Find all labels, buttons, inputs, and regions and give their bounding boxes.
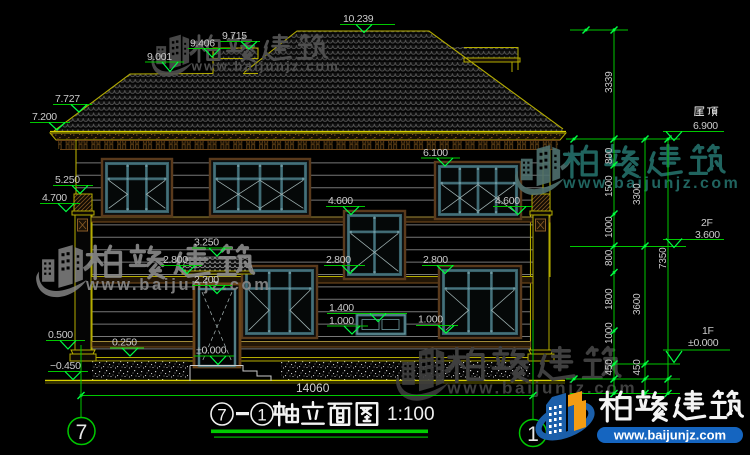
svg-text:1.000: 1.000 xyxy=(418,314,443,326)
svg-text:9.001: 9.001 xyxy=(147,51,172,63)
svg-text:7350: 7350 xyxy=(658,247,669,269)
svg-text:6.900: 6.900 xyxy=(693,120,718,132)
svg-text:450: 450 xyxy=(632,359,643,376)
svg-text:1000: 1000 xyxy=(604,216,615,238)
svg-text:7: 7 xyxy=(76,421,88,444)
svg-text:800: 800 xyxy=(604,147,615,164)
svg-text:3.250: 3.250 xyxy=(194,237,219,249)
svg-text:5.250: 5.250 xyxy=(55,174,80,186)
svg-text:0.500: 0.500 xyxy=(48,329,73,341)
svg-text:www.baijunjz.com: www.baijunjz.com xyxy=(85,276,272,294)
svg-text:2.800: 2.800 xyxy=(326,254,351,266)
svg-text:1.000: 1.000 xyxy=(329,315,354,327)
svg-text:800: 800 xyxy=(604,249,615,266)
svg-text:2.800: 2.800 xyxy=(423,254,448,266)
svg-text:1800: 1800 xyxy=(604,288,615,310)
svg-text:±0.000: ±0.000 xyxy=(196,345,227,357)
svg-text:±0.000: ±0.000 xyxy=(688,337,719,349)
svg-text:3600: 3600 xyxy=(632,293,643,315)
svg-text:1500: 1500 xyxy=(604,175,615,197)
svg-text:4.700: 4.700 xyxy=(42,192,67,204)
svg-text:3300: 3300 xyxy=(632,183,643,205)
svg-text:10.239: 10.239 xyxy=(343,13,374,25)
svg-text:14060: 14060 xyxy=(296,381,330,395)
svg-text:1:100: 1:100 xyxy=(387,404,435,425)
svg-text:www.baijunjz.com: www.baijunjz.com xyxy=(562,175,740,192)
svg-text:7: 7 xyxy=(217,406,226,425)
svg-text:−0.450: −0.450 xyxy=(50,360,81,372)
svg-text:7.200: 7.200 xyxy=(32,111,57,123)
svg-text:450: 450 xyxy=(604,359,615,376)
svg-text:2.200: 2.200 xyxy=(194,274,219,286)
svg-text:6.100: 6.100 xyxy=(423,147,448,159)
svg-text:0.250: 0.250 xyxy=(112,337,137,349)
svg-text:9.406: 9.406 xyxy=(190,38,215,50)
svg-text:2F: 2F xyxy=(701,217,713,229)
svg-text:9.715: 9.715 xyxy=(222,30,247,42)
svg-text:1.400: 1.400 xyxy=(329,302,354,314)
svg-text:www.baijunjz.com: www.baijunjz.com xyxy=(613,428,726,443)
svg-text:www.baijunjz.com: www.baijunjz.com xyxy=(191,59,340,74)
svg-text:3339: 3339 xyxy=(604,71,615,93)
svg-text:1000: 1000 xyxy=(604,322,615,344)
svg-text:4.600: 4.600 xyxy=(495,195,520,207)
svg-text:1: 1 xyxy=(257,406,266,425)
svg-text:1F: 1F xyxy=(702,325,714,337)
svg-text:4.600: 4.600 xyxy=(328,195,353,207)
svg-text:7.727: 7.727 xyxy=(55,93,80,105)
svg-text:2.800: 2.800 xyxy=(163,254,188,266)
